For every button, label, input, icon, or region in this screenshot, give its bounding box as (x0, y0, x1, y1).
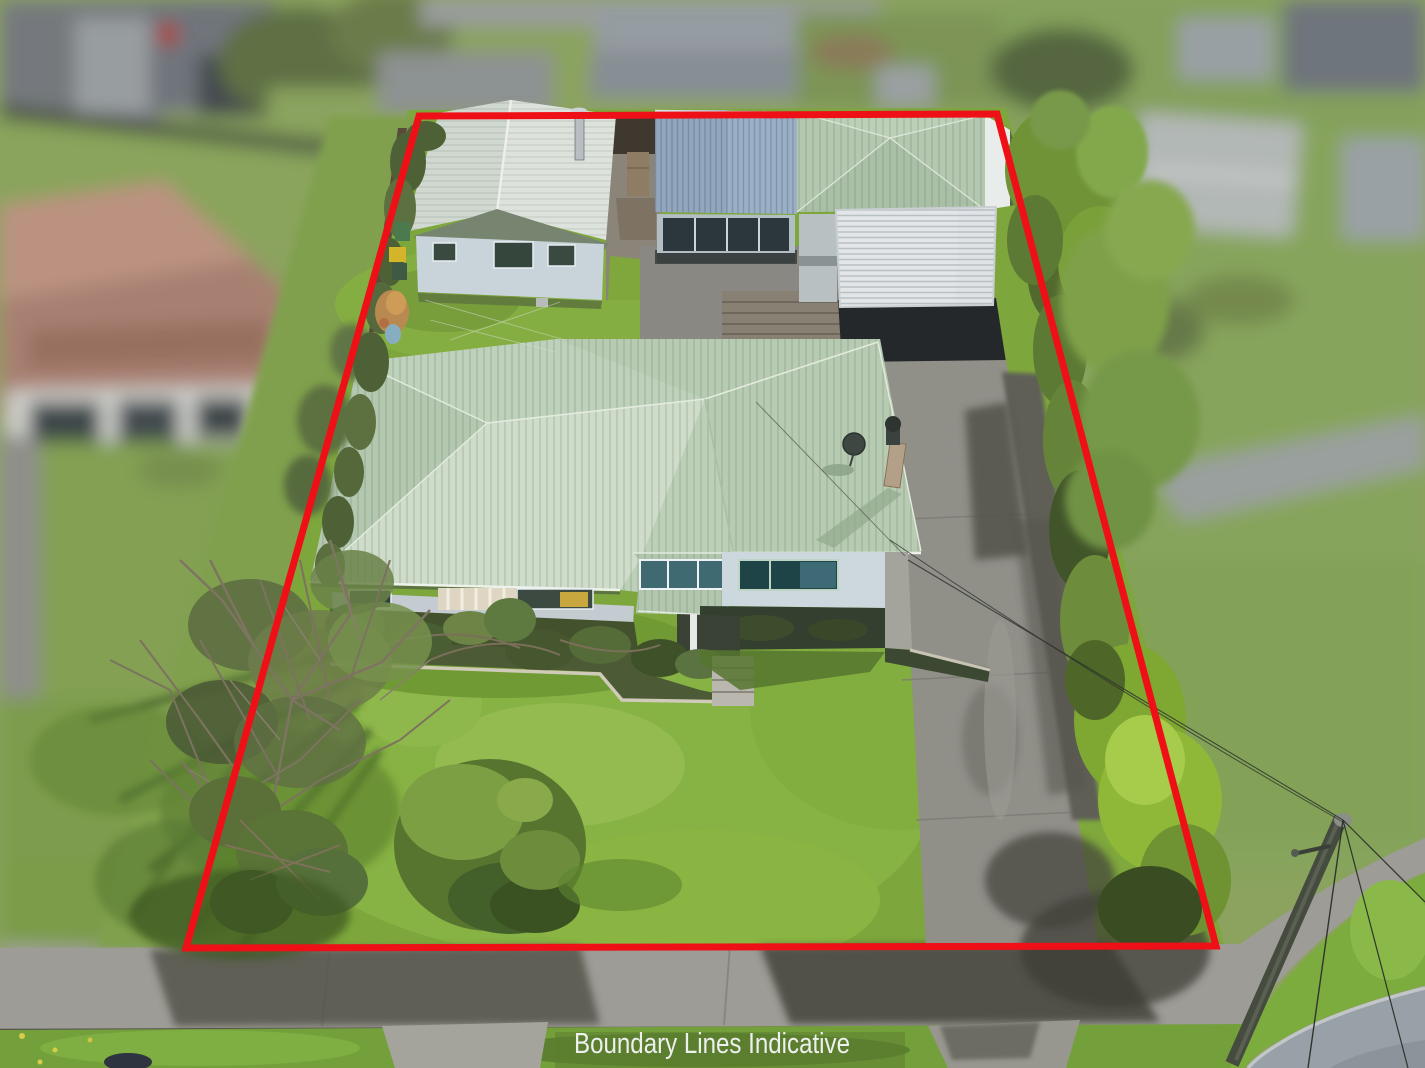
svg-text:Boundary Lines Indicative: Boundary Lines Indicative (574, 1028, 850, 1060)
